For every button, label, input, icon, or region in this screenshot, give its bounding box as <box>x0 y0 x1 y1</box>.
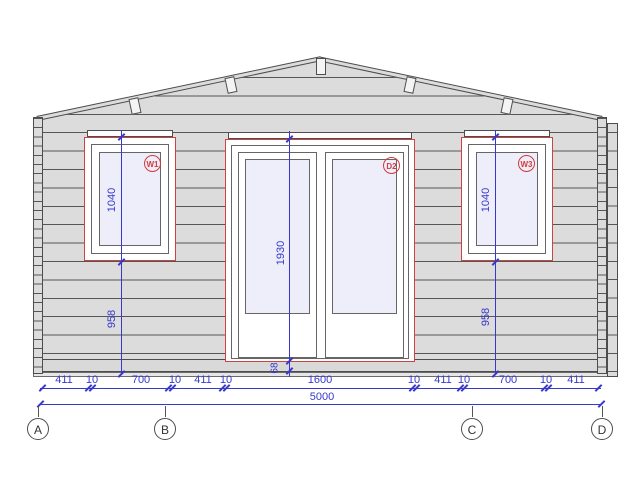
dim-chain-line <box>40 388 601 389</box>
chain-label: 10 <box>540 374 552 386</box>
chain-label: 411 <box>567 374 585 386</box>
grid-stub-a <box>38 406 39 417</box>
dim-w3-height: 1040 <box>480 188 492 212</box>
door-d2: D2 <box>225 139 415 362</box>
chain-label: 411 <box>434 374 452 386</box>
dim-total-line <box>40 404 601 405</box>
grid-bubble-c: C <box>461 418 483 440</box>
chain-label: 1600 <box>308 374 332 386</box>
grid-bubble-d: D <box>591 418 613 440</box>
window-w3-cap <box>464 130 550 137</box>
chain-label: 10 <box>408 374 420 386</box>
window-w1-cap <box>87 130 173 137</box>
grid-stub-d <box>602 406 603 417</box>
chain-label: 10 <box>220 374 232 386</box>
chain-label: 411 <box>194 374 212 386</box>
door-d2-right-glass <box>332 159 397 314</box>
dim-line-w1 <box>121 130 122 375</box>
chain-label: 10 <box>169 374 181 386</box>
window-w3-tag: W3 <box>518 155 535 172</box>
window-w1-tag: W1 <box>144 155 161 172</box>
rafter-end-ridge <box>316 58 326 75</box>
dim-d2-threshold: 68 <box>270 362 281 373</box>
elevation-drawing: W1 D2 W3 1040 958 1930 68 1040 958 <box>0 0 640 480</box>
chain-label: 10 <box>86 374 98 386</box>
window-w3: W3 <box>461 137 553 261</box>
door-d2-left-glass <box>245 159 310 314</box>
chain-label: 411 <box>55 374 73 386</box>
dim-tick <box>595 384 603 392</box>
dim-w3-sill: 958 <box>480 308 492 326</box>
dim-w1-height: 1040 <box>106 188 118 212</box>
chain-label: 700 <box>499 374 517 386</box>
grid-stub-c <box>472 406 473 417</box>
dim-line-d2 <box>289 131 290 377</box>
grid-bubble-b: B <box>154 418 176 440</box>
door-d2-tag: D2 <box>383 157 400 174</box>
corner-log-ends-right <box>607 123 618 377</box>
corner-joint-right <box>597 117 607 374</box>
dim-w1-sill: 958 <box>106 310 118 328</box>
dim-line-w3 <box>495 130 496 375</box>
chain-label: 700 <box>132 374 150 386</box>
grid-bubble-a: A <box>27 418 49 440</box>
chain-label: 10 <box>458 374 470 386</box>
window-w1: W1 <box>84 137 176 261</box>
corner-joint-left <box>33 117 43 374</box>
dim-d2-height: 1930 <box>275 241 287 265</box>
grid-stub-b <box>165 406 166 417</box>
dim-total-width: 5000 <box>310 391 334 403</box>
door-d2-cap <box>228 132 412 139</box>
